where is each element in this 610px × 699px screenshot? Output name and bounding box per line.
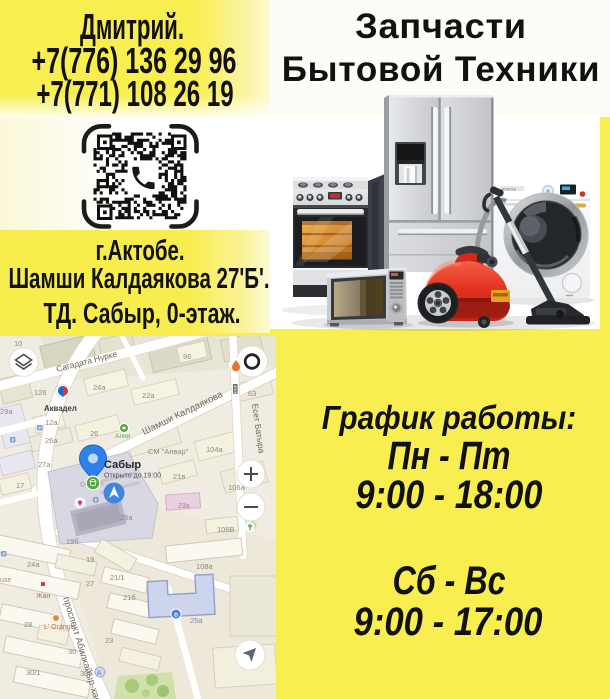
svg-text:30: 30 xyxy=(68,647,76,656)
svg-text:10: 10 xyxy=(14,339,22,348)
svg-text:24а: 24а xyxy=(27,560,40,569)
svg-text:19: 19 xyxy=(86,555,94,564)
svg-text:27а: 27а xyxy=(38,460,51,469)
svg-text:17: 17 xyxy=(16,481,24,490)
svg-text:L' Orange: L' Orange xyxy=(44,624,75,631)
svg-text:29а: 29а xyxy=(0,407,13,416)
svg-text:26а: 26а xyxy=(45,436,58,445)
svg-text:23: 23 xyxy=(105,636,113,645)
svg-text:126: 126 xyxy=(34,388,47,397)
svg-text:СМ "Анвар": СМ "Анвар" xyxy=(148,447,189,456)
svg-text:108В: 108В xyxy=(217,525,235,534)
svg-text:22а: 22а xyxy=(142,391,155,400)
svg-text:Сабыр: Сабыр xyxy=(104,459,141,471)
svg-text:Аквадел: Аквадел xyxy=(44,404,77,413)
svg-text:А: А xyxy=(97,670,102,677)
svg-text:30/1: 30/1 xyxy=(26,668,41,677)
svg-text:P: P xyxy=(3,552,6,557)
svg-text:104а: 104а xyxy=(206,445,224,454)
svg-text:28: 28 xyxy=(24,620,32,629)
svg-text:63: 63 xyxy=(248,389,256,398)
svg-text:Алия: Алия xyxy=(115,433,131,440)
svg-text:108а: 108а xyxy=(196,562,214,571)
svg-text:21/1: 21/1 xyxy=(110,573,125,582)
svg-text:12а: 12а xyxy=(45,418,58,427)
svg-text:96: 96 xyxy=(183,352,191,361)
svg-text:24а: 24а xyxy=(93,383,106,392)
svg-text:HITACHI: HITACHI xyxy=(502,188,516,192)
svg-text:27: 27 xyxy=(86,579,94,588)
svg-text:23а: 23а xyxy=(178,503,190,510)
svg-text:use: use xyxy=(0,577,11,584)
svg-text:Ф: Ф xyxy=(174,613,179,619)
svg-text:P: P xyxy=(95,498,98,503)
svg-text:21в: 21в xyxy=(173,472,185,481)
svg-text:Жан: Жан xyxy=(36,593,50,600)
svg-text:21б: 21б xyxy=(123,593,136,602)
svg-text:25а: 25а xyxy=(190,616,203,625)
svg-text:30б: 30б xyxy=(80,669,93,678)
svg-text:19б: 19б xyxy=(66,537,79,546)
svg-text:26: 26 xyxy=(90,429,98,438)
svg-text:P: P xyxy=(12,438,15,443)
svg-text:P: P xyxy=(39,426,42,431)
svg-text:25а: 25а xyxy=(120,513,133,522)
svg-text:Открыто до 19:00: Открыто до 19:00 xyxy=(104,473,161,480)
